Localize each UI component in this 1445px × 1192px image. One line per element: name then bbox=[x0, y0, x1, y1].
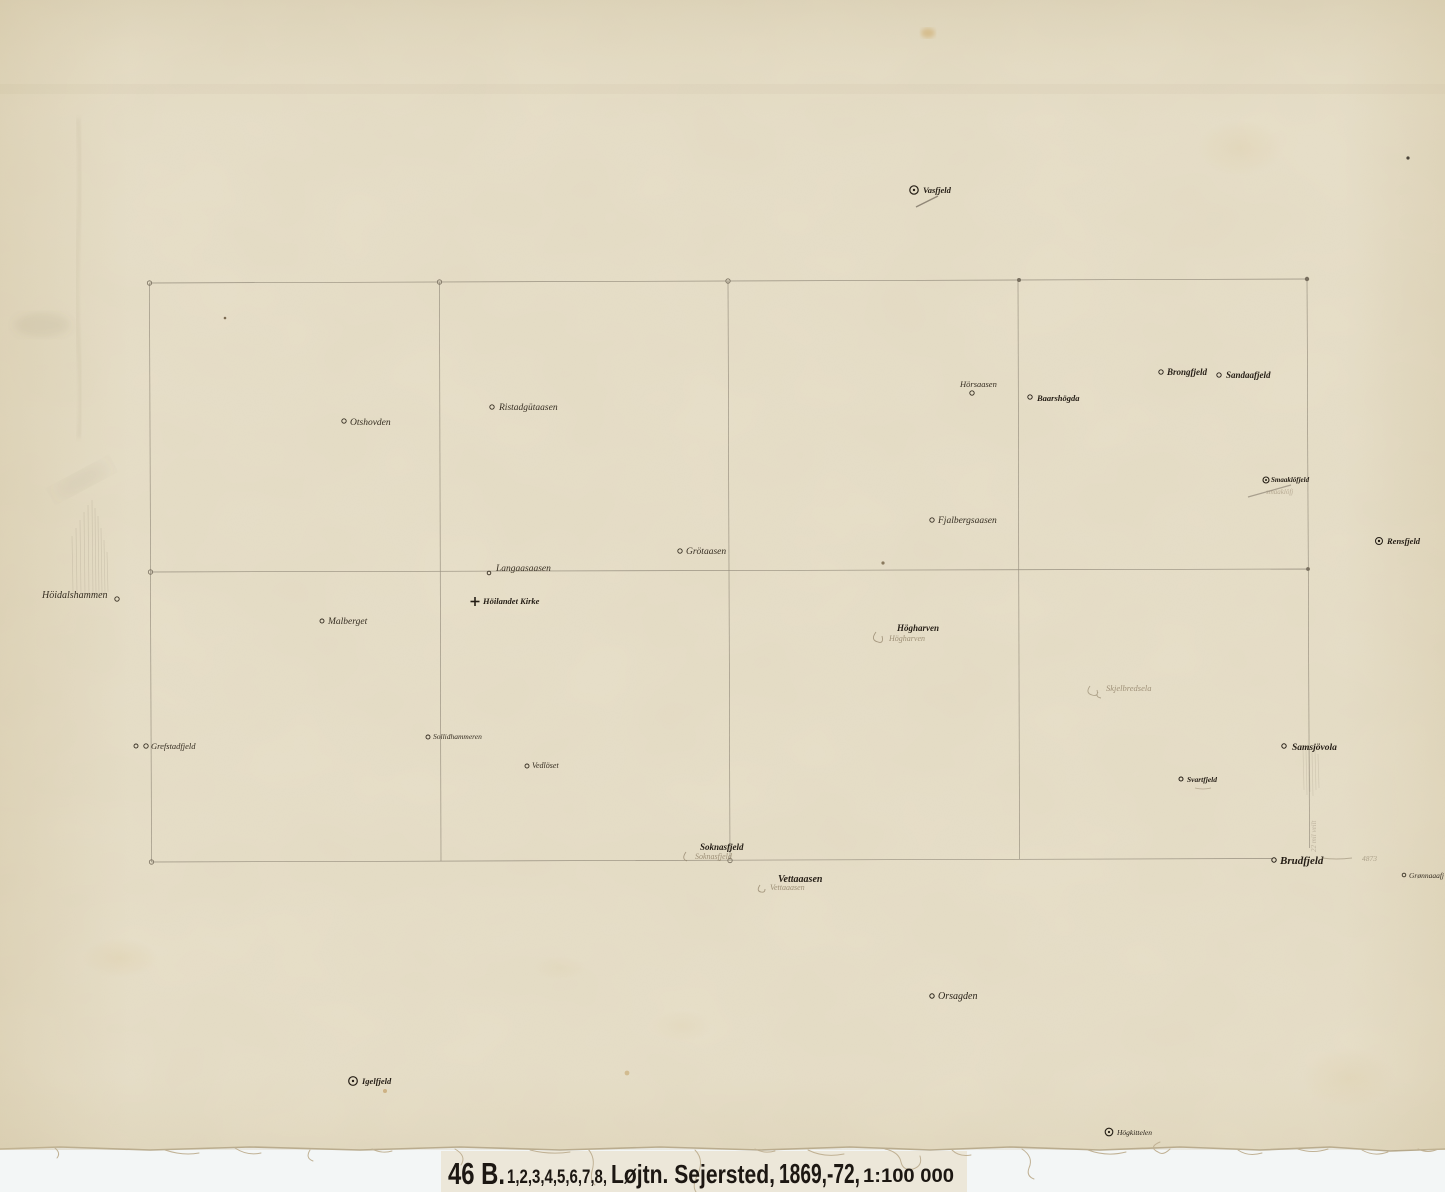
svg-text:1,2,3,4,5,6,7,8,: 1,2,3,4,5,6,7,8, bbox=[507, 1167, 607, 1188]
svg-text:22 mil veilt: 22 mil veilt bbox=[1310, 819, 1318, 852]
svg-text:Malberget: Malberget bbox=[327, 617, 368, 627]
svg-text:smaaklöfj: smaaklöfj bbox=[1266, 488, 1293, 496]
svg-text:Grønnaaafj: Grønnaaafj bbox=[1409, 871, 1444, 880]
svg-text:Höidalshammen: Höidalshammen bbox=[41, 590, 108, 601]
svg-text:Langaasaasen: Langaasaasen bbox=[495, 564, 551, 574]
svg-text:Otshovden: Otshovden bbox=[350, 418, 391, 428]
svg-text:Fjalbergsaasen: Fjalbergsaasen bbox=[937, 516, 997, 526]
svg-text:Ristadgütaasen: Ristadgütaasen bbox=[498, 403, 558, 413]
svg-text:Svartfjeld: Svartfjeld bbox=[1187, 775, 1217, 784]
svg-text:Sandaafjeld: Sandaafjeld bbox=[1226, 370, 1271, 380]
svg-text:Soknasfjeld: Soknasfjeld bbox=[700, 842, 744, 852]
svg-text:Grötaasen: Grötaasen bbox=[686, 547, 726, 557]
svg-text:Løjtn. Sejersted,: Løjtn. Sejersted, bbox=[611, 1159, 775, 1189]
svg-text:Vedlöset: Vedlöset bbox=[532, 761, 559, 770]
svg-text:Rensfjeld: Rensfjeld bbox=[1386, 536, 1421, 546]
svg-text:46 B.: 46 B. bbox=[448, 1156, 505, 1191]
svg-text:Smaaklöfjeld: Smaaklöfjeld bbox=[1271, 476, 1310, 484]
svg-text:Hörsaasen: Hörsaasen bbox=[959, 379, 997, 389]
svg-text:Samsjövola: Samsjövola bbox=[1292, 743, 1337, 753]
svg-text:Högharven: Högharven bbox=[888, 634, 925, 643]
svg-text:Vettaaasen: Vettaaasen bbox=[770, 883, 805, 892]
svg-text:Grefstadfjeld: Grefstadfjeld bbox=[151, 741, 196, 751]
svg-text:Baarshögda: Baarshögda bbox=[1036, 393, 1080, 403]
svg-text:Soknasfjeld: Soknasfjeld bbox=[695, 852, 733, 861]
svg-text:Brudfjeld: Brudfjeld bbox=[1279, 855, 1324, 867]
svg-text:Högharven: Högharven bbox=[896, 623, 939, 633]
svg-text:1:100 000: 1:100 000 bbox=[863, 1166, 954, 1187]
svg-text:Höilandet Kirke: Höilandet Kirke bbox=[482, 596, 540, 606]
svg-text:Vasfjeld: Vasfjeld bbox=[923, 185, 952, 195]
svg-text:1869,-72,: 1869,-72, bbox=[779, 1158, 860, 1189]
svg-text:Orsagden: Orsagden bbox=[938, 991, 977, 1002]
svg-text:Sollidhammeren: Sollidhammeren bbox=[433, 732, 482, 741]
svg-text:Igelfjeld: Igelfjeld bbox=[361, 1076, 392, 1086]
svg-text:4873: 4873 bbox=[1362, 854, 1377, 863]
svg-text:Skjelbredsela: Skjelbredsela bbox=[1106, 683, 1151, 693]
svg-text:Brongfjeld: Brongfjeld bbox=[1166, 367, 1208, 377]
svg-text:Högkittelen: Högkittelen bbox=[1116, 1128, 1152, 1137]
